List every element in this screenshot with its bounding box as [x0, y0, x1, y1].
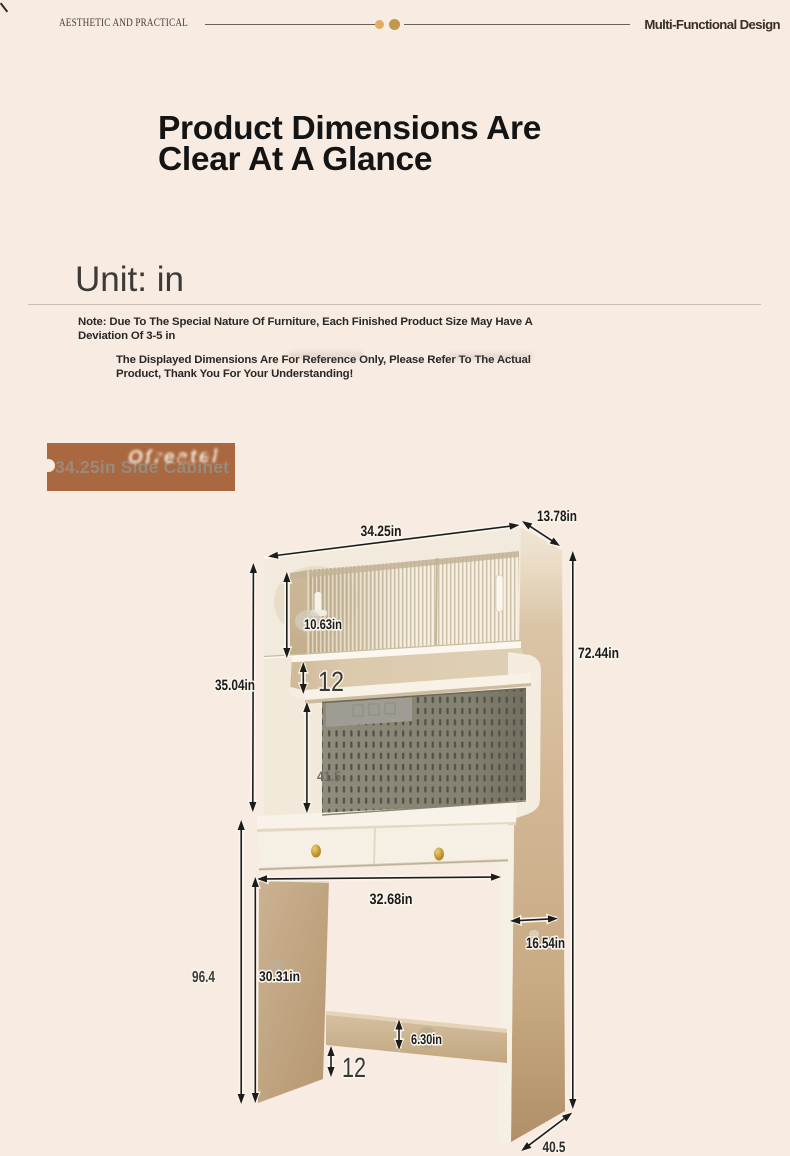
svg-text:13.78in: 13.78in [537, 508, 577, 525]
svg-text:30.31in: 30.31in [259, 968, 300, 984]
svg-text:96.4: 96.4 [192, 969, 215, 986]
svg-text:35.04in: 35.04in [215, 677, 255, 694]
svg-text:10.63in: 10.63in [304, 616, 342, 632]
svg-text:12: 12 [318, 666, 344, 697]
svg-text:34.25in: 34.25in [361, 523, 402, 540]
svg-text:12: 12 [342, 1052, 366, 1083]
svg-text:41.5: 41.5 [317, 768, 341, 784]
svg-text:72.44in: 72.44in [578, 645, 619, 662]
svg-text:40.5: 40.5 [543, 1139, 566, 1156]
svg-text:6.30in: 6.30in [411, 1031, 442, 1047]
svg-text:32.68in: 32.68in [370, 891, 413, 908]
